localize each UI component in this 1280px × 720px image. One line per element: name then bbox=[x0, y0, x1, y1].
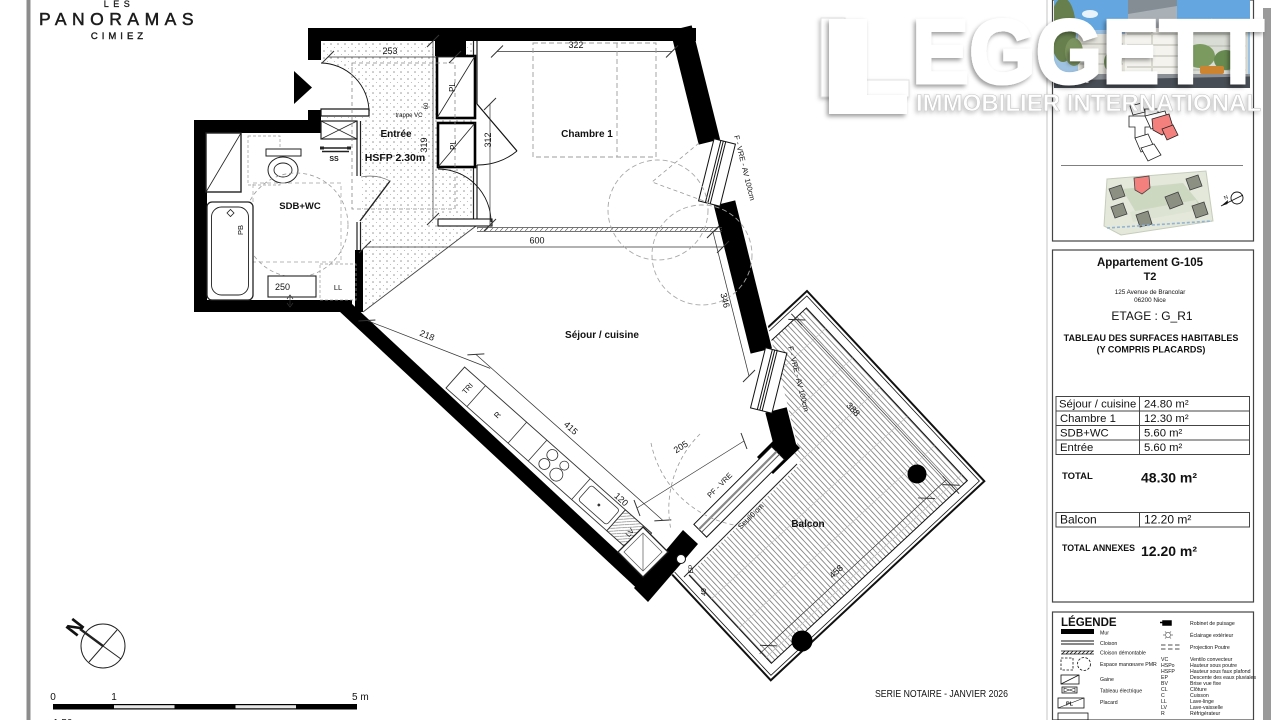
svg-text:Entrée: Entrée bbox=[1060, 442, 1093, 454]
svg-text:Gaine: Gaine bbox=[1100, 677, 1114, 683]
svg-text:EP: EP bbox=[688, 565, 695, 574]
svg-text:06200 Nice: 06200 Nice bbox=[1134, 297, 1166, 304]
svg-text:600: 600 bbox=[529, 236, 544, 246]
svg-text:TOTAL ANNEXES: TOTAL ANNEXES bbox=[1062, 543, 1135, 553]
svg-text:Projection Poutre: Projection Poutre bbox=[1190, 645, 1230, 651]
svg-text:Réfrigérateur: Réfrigérateur bbox=[1190, 711, 1221, 717]
svg-text:49: 49 bbox=[701, 588, 708, 596]
svg-text:Séjour / cuisine: Séjour / cuisine bbox=[1059, 399, 1136, 411]
svg-text:SERIE NOTAIRE - JANVIER 2026: SERIE NOTAIRE - JANVIER 2026 bbox=[875, 688, 1008, 700]
svg-text:PL: PL bbox=[1066, 702, 1074, 708]
svg-text:LES: LES bbox=[104, 0, 135, 9]
svg-text:0: 0 bbox=[50, 692, 56, 703]
svg-text:Balcon: Balcon bbox=[791, 519, 824, 530]
svg-text:(Y COMPRIS PLACARDS): (Y COMPRIS PLACARDS) bbox=[1097, 345, 1206, 355]
svg-text:TABLEAU DES SURFACES HABITABLE: TABLEAU DES SURFACES HABITABLES bbox=[1064, 333, 1239, 343]
svg-text:F - VRE - AV 100cm: F - VRE - AV 100cm bbox=[732, 134, 757, 201]
svg-text:LL: LL bbox=[334, 283, 342, 292]
svg-text:Espace manœuvre PMR: Espace manœuvre PMR bbox=[1100, 662, 1157, 668]
svg-text:Appartement G-105: Appartement G-105 bbox=[1097, 257, 1204, 269]
svg-text:N: N bbox=[62, 615, 89, 641]
svg-text:TOTAL: TOTAL bbox=[1062, 471, 1093, 482]
svg-text:Cloison: Cloison bbox=[1100, 641, 1117, 647]
svg-text:PANORAMAS: PANORAMAS bbox=[39, 9, 199, 29]
svg-text:Placard: Placard bbox=[1100, 700, 1118, 706]
svg-text:Chambre 1: Chambre 1 bbox=[561, 129, 613, 140]
svg-text:5.60 m²: 5.60 m² bbox=[1144, 428, 1183, 440]
svg-text:125 Avenue de Brancolar: 125 Avenue de Brancolar bbox=[1115, 289, 1186, 296]
svg-text:LÉGENDE: LÉGENDE bbox=[1061, 616, 1117, 629]
svg-text:250: 250 bbox=[275, 282, 290, 292]
svg-text:1: 1 bbox=[111, 692, 117, 703]
svg-text:12.20 m²: 12.20 m² bbox=[1141, 543, 1197, 559]
svg-text:Chambre 1: Chambre 1 bbox=[1060, 413, 1116, 425]
svg-text:322: 322 bbox=[568, 40, 583, 50]
svg-text:trappe VC: trappe VC bbox=[395, 113, 423, 119]
svg-text:PL: PL bbox=[449, 140, 458, 150]
svg-text:T2: T2 bbox=[1144, 271, 1157, 283]
svg-text:Éclairage extérieur: Éclairage extérieur bbox=[1190, 632, 1234, 639]
svg-text:5.60 m²: 5.60 m² bbox=[1144, 442, 1183, 454]
svg-text:ETAGE : G_R1: ETAGE : G_R1 bbox=[1111, 309, 1192, 323]
svg-text:Tableau électrique: Tableau électrique bbox=[1100, 689, 1142, 695]
svg-text:PB: PB bbox=[236, 225, 245, 235]
svg-text:60: 60 bbox=[424, 102, 430, 109]
svg-text:PL: PL bbox=[448, 82, 457, 92]
svg-text:5 m: 5 m bbox=[352, 692, 369, 703]
svg-text:IMMOBILIER INTERNATIONAL: IMMOBILIER INTERNATIONAL bbox=[916, 90, 1261, 117]
svg-text:48.30 m²: 48.30 m² bbox=[1141, 470, 1197, 486]
svg-text:Mur: Mur bbox=[1100, 631, 1109, 637]
svg-text:Cloison démontable: Cloison démontable bbox=[1100, 651, 1146, 657]
svg-text:CIMIEZ: CIMIEZ bbox=[91, 31, 147, 42]
svg-text:SDB+WC: SDB+WC bbox=[279, 201, 321, 212]
svg-text:312: 312 bbox=[483, 132, 493, 147]
svg-text:EGGETT: EGGETT bbox=[912, 2, 1264, 103]
svg-text:SDB+WC: SDB+WC bbox=[1060, 428, 1109, 440]
svg-text:24.80 m²: 24.80 m² bbox=[1144, 399, 1189, 411]
svg-text:Séjour / cuisine: Séjour / cuisine bbox=[565, 330, 639, 341]
svg-text:Entrée: Entrée bbox=[380, 129, 412, 140]
svg-text:Robinet de puisage: Robinet de puisage bbox=[1190, 621, 1235, 627]
svg-text:R: R bbox=[1161, 711, 1165, 717]
svg-text:HSFP 2.30m: HSFP 2.30m bbox=[365, 152, 426, 164]
svg-text:12.20 m²: 12.20 m² bbox=[1144, 513, 1191, 527]
svg-text:12.30 m²: 12.30 m² bbox=[1144, 413, 1189, 425]
svg-text:253: 253 bbox=[382, 46, 397, 56]
svg-text:SS: SS bbox=[329, 156, 339, 163]
svg-text:319: 319 bbox=[419, 137, 429, 152]
svg-text:Balcon: Balcon bbox=[1060, 513, 1097, 527]
